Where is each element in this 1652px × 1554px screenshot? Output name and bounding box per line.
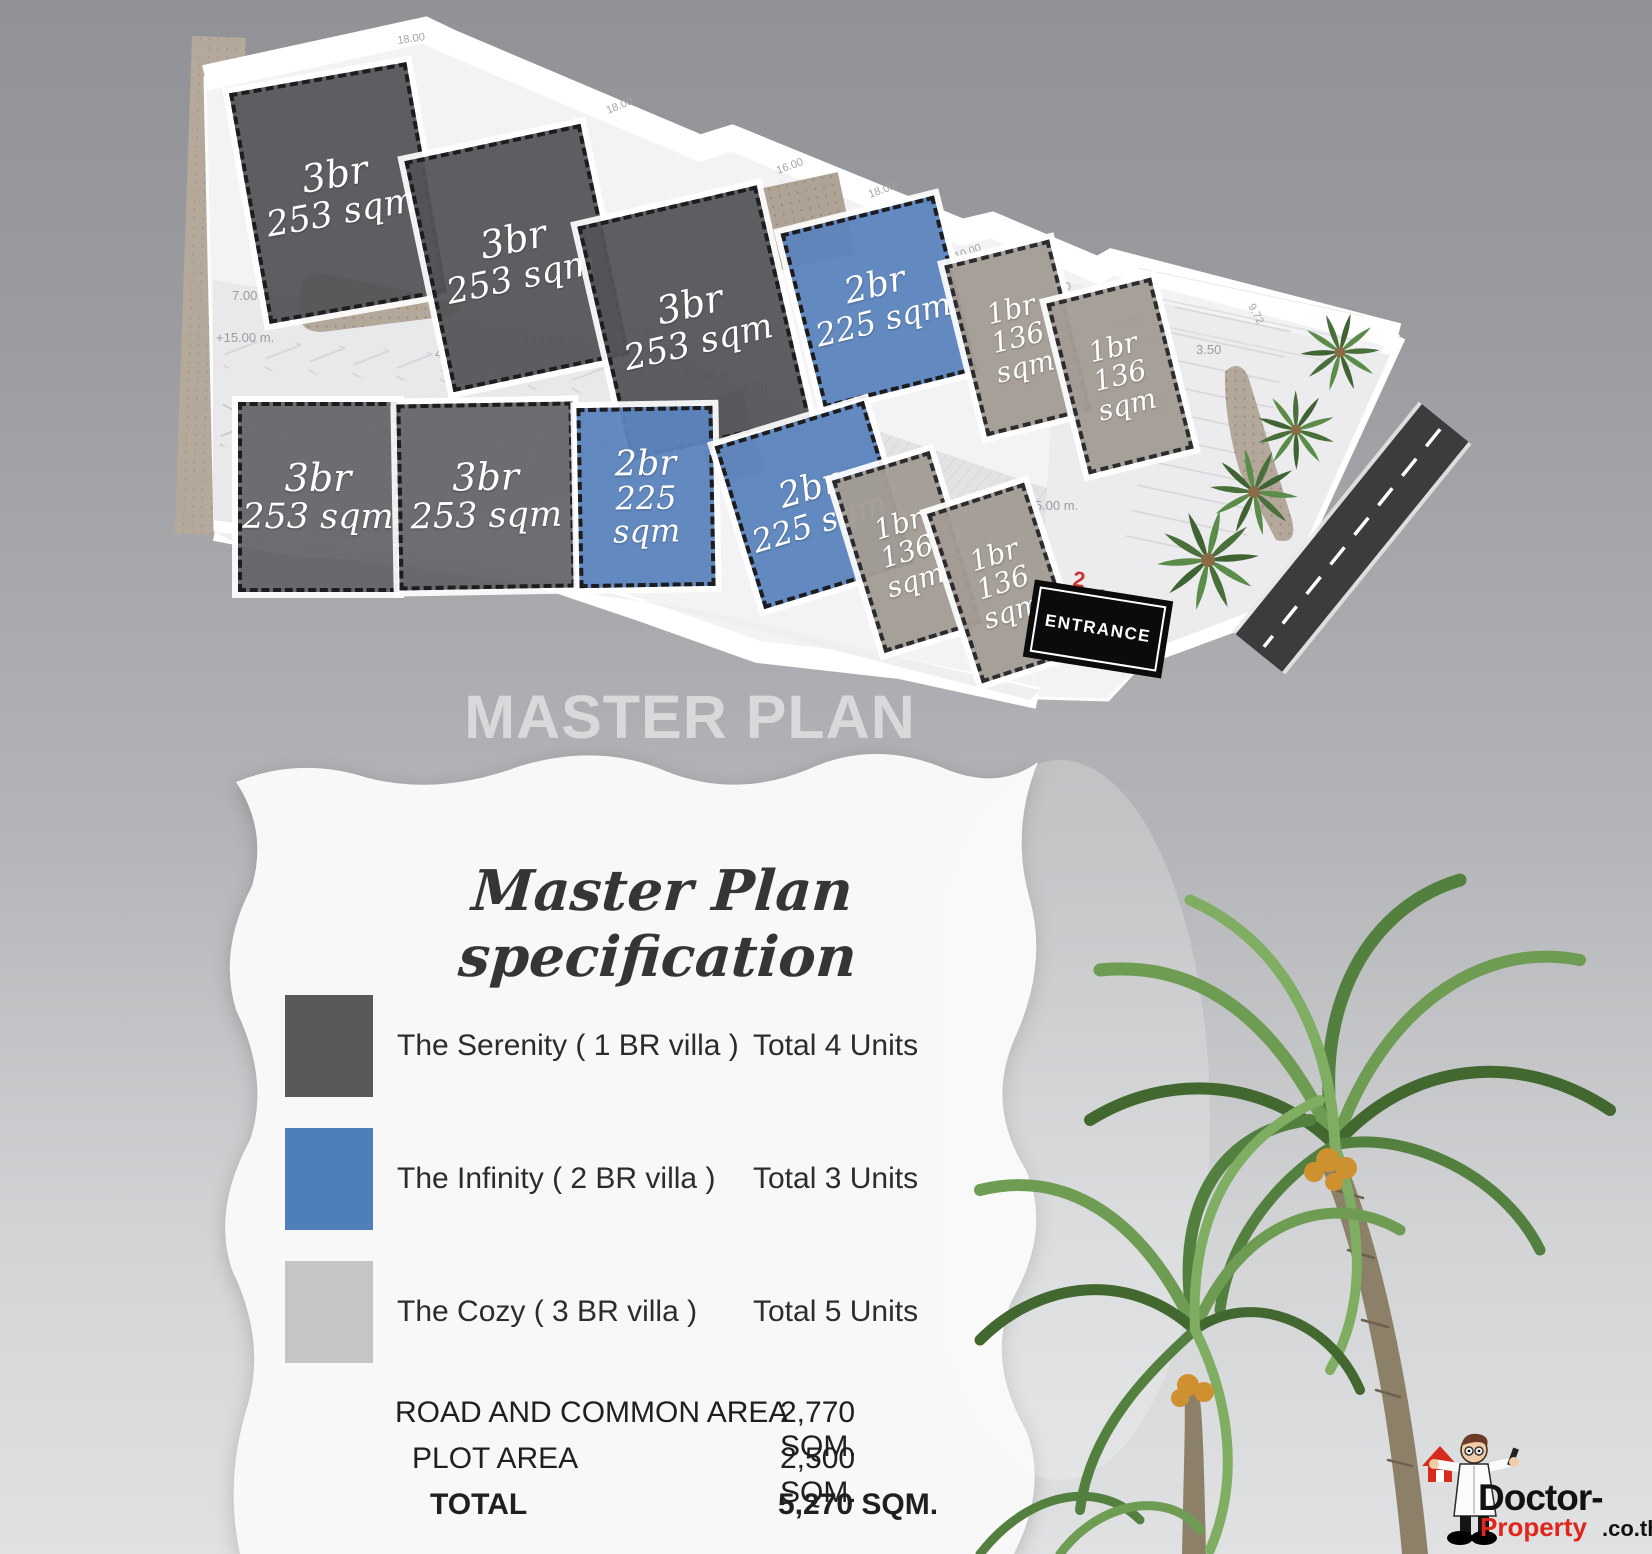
doctor-property-logo: Doctor- Property .co.th: [1416, 1424, 1652, 1550]
legend-total: Total 5 Units: [753, 1295, 933, 1329]
legend-name: The Infinity ( 2 BR villa ): [397, 1162, 757, 1196]
total-label: PLOT AREA: [412, 1442, 578, 1475]
total-label: TOTAL: [430, 1488, 527, 1521]
logo-text-property: Property: [1480, 1512, 1587, 1542]
legend-swatch-infinity: [285, 1128, 373, 1230]
total-row-plot: PLOT AREA 2,500 SQM.: [412, 1442, 932, 1476]
legend-swatch-serenity: [285, 995, 373, 1097]
corner-fronds: [980, 1496, 1200, 1554]
logo-text-suffix: .co.th: [1602, 1516, 1652, 1541]
paper-shadow-blob: [940, 760, 1210, 1480]
legend-row-serenity: The Serenity ( 1 BR villa ) Total 4 Unit…: [285, 993, 935, 1099]
total-label: ROAD AND COMMON AREA: [395, 1396, 788, 1429]
spec-title: Master Plan specification: [270, 858, 1049, 990]
legend-total: Total 3 Units: [753, 1162, 933, 1196]
poster-canvas: 7.00 +15.00 m. 4.50 4.50 +15.00 m. +15.0…: [0, 0, 1652, 1554]
legend-swatch-cozy: [285, 1261, 373, 1363]
legend-name: The Cozy ( 3 BR villa ): [397, 1295, 757, 1329]
total-value: 5,270 SQM.: [778, 1488, 938, 1522]
legend-row-infinity: The Infinity ( 2 BR villa ) Total 3 Unit…: [285, 1126, 935, 1232]
legend-name: The Serenity ( 1 BR villa ): [397, 1029, 757, 1063]
total-row-grand: TOTAL 5,270 SQM.: [430, 1488, 950, 1522]
legend-total: Total 4 Units: [753, 1029, 933, 1063]
total-row-road: ROAD AND COMMON AREA 2,770 SQM.: [395, 1396, 915, 1430]
legend-row-cozy: The Cozy ( 3 BR villa ) Total 5 Units: [285, 1259, 935, 1365]
